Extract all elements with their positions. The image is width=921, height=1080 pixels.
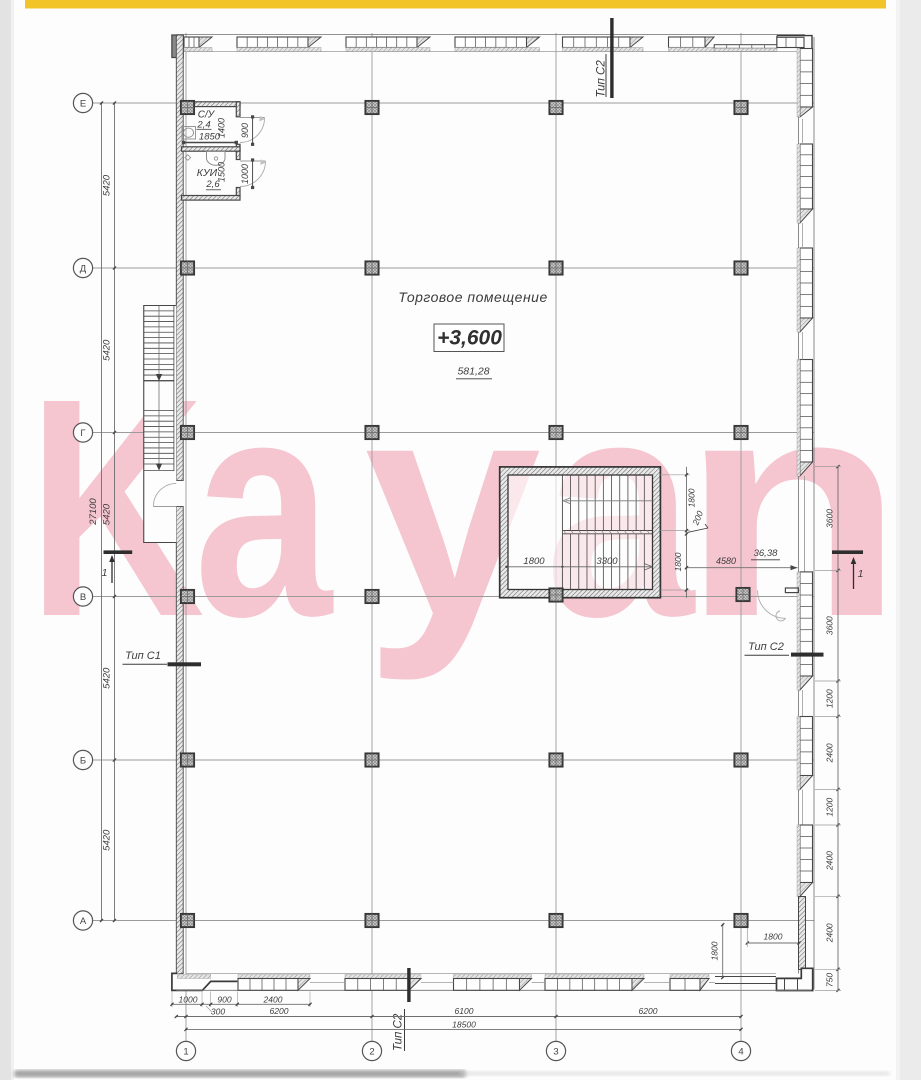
svg-text:3300: 3300	[596, 556, 618, 567]
svg-text:Тип С2: Тип С2	[393, 1013, 405, 1051]
svg-text:36,38: 36,38	[754, 548, 778, 559]
svg-text:В: В	[80, 592, 86, 603]
svg-text:6100: 6100	[455, 1006, 474, 1016]
svg-text:581,28: 581,28	[457, 366, 489, 378]
svg-text:900: 900	[217, 994, 231, 1004]
svg-text:1800: 1800	[673, 552, 683, 571]
svg-text:18500: 18500	[452, 1019, 476, 1029]
svg-text:1000: 1000	[240, 164, 250, 184]
svg-text:1400: 1400	[217, 118, 227, 138]
svg-text:1200: 1200	[825, 797, 835, 816]
svg-text:5420: 5420	[102, 829, 113, 851]
svg-text:5420: 5420	[102, 174, 113, 196]
svg-text:2400: 2400	[825, 743, 835, 763]
svg-text:4: 4	[738, 1046, 743, 1057]
svg-text:3600: 3600	[825, 616, 835, 635]
svg-text:1: 1	[183, 1046, 188, 1057]
svg-text:n: n	[681, 333, 905, 681]
svg-text:1800: 1800	[710, 941, 720, 960]
svg-text:4580: 4580	[716, 556, 736, 566]
svg-text:1: 1	[858, 568, 864, 580]
svg-text:750: 750	[825, 973, 835, 987]
svg-text:1800: 1800	[687, 488, 697, 507]
svg-text:1500: 1500	[217, 162, 227, 182]
svg-text:Е: Е	[80, 98, 86, 109]
svg-text:300: 300	[211, 1007, 225, 1017]
svg-text:+3,600: +3,600	[437, 327, 502, 350]
svg-text:5420: 5420	[102, 339, 113, 361]
svg-text:6200: 6200	[270, 1006, 289, 1016]
svg-text:2400: 2400	[825, 923, 835, 943]
svg-text:900: 900	[240, 123, 250, 138]
svg-text:1: 1	[102, 567, 108, 579]
svg-text:1000: 1000	[179, 994, 198, 1004]
svg-text:1800: 1800	[523, 556, 545, 567]
svg-text:2400: 2400	[825, 851, 835, 871]
svg-text:2,4: 2,4	[196, 120, 210, 131]
svg-text:Тип С2: Тип С2	[748, 641, 784, 653]
svg-text:1800: 1800	[764, 932, 783, 942]
svg-text:Д: Д	[80, 263, 87, 274]
svg-text:6200: 6200	[639, 1006, 658, 1016]
svg-text:Тип С1: Тип С1	[125, 650, 161, 662]
svg-text:А: А	[80, 916, 87, 927]
svg-text:3: 3	[553, 1046, 558, 1057]
svg-text:КУИ: КУИ	[197, 167, 218, 179]
svg-text:2400: 2400	[263, 994, 283, 1004]
svg-text:27100: 27100	[88, 498, 99, 526]
svg-text:Г: Г	[80, 428, 85, 439]
svg-text:Б: Б	[80, 755, 86, 766]
svg-text:Торговое помещение: Торговое помещение	[398, 289, 548, 305]
svg-text:a: a	[194, 333, 334, 681]
svg-text:2: 2	[369, 1046, 374, 1057]
svg-text:1200: 1200	[825, 689, 835, 708]
svg-text:3600: 3600	[825, 509, 835, 528]
svg-text:5420: 5420	[102, 667, 113, 689]
svg-text:5420: 5420	[102, 503, 113, 525]
